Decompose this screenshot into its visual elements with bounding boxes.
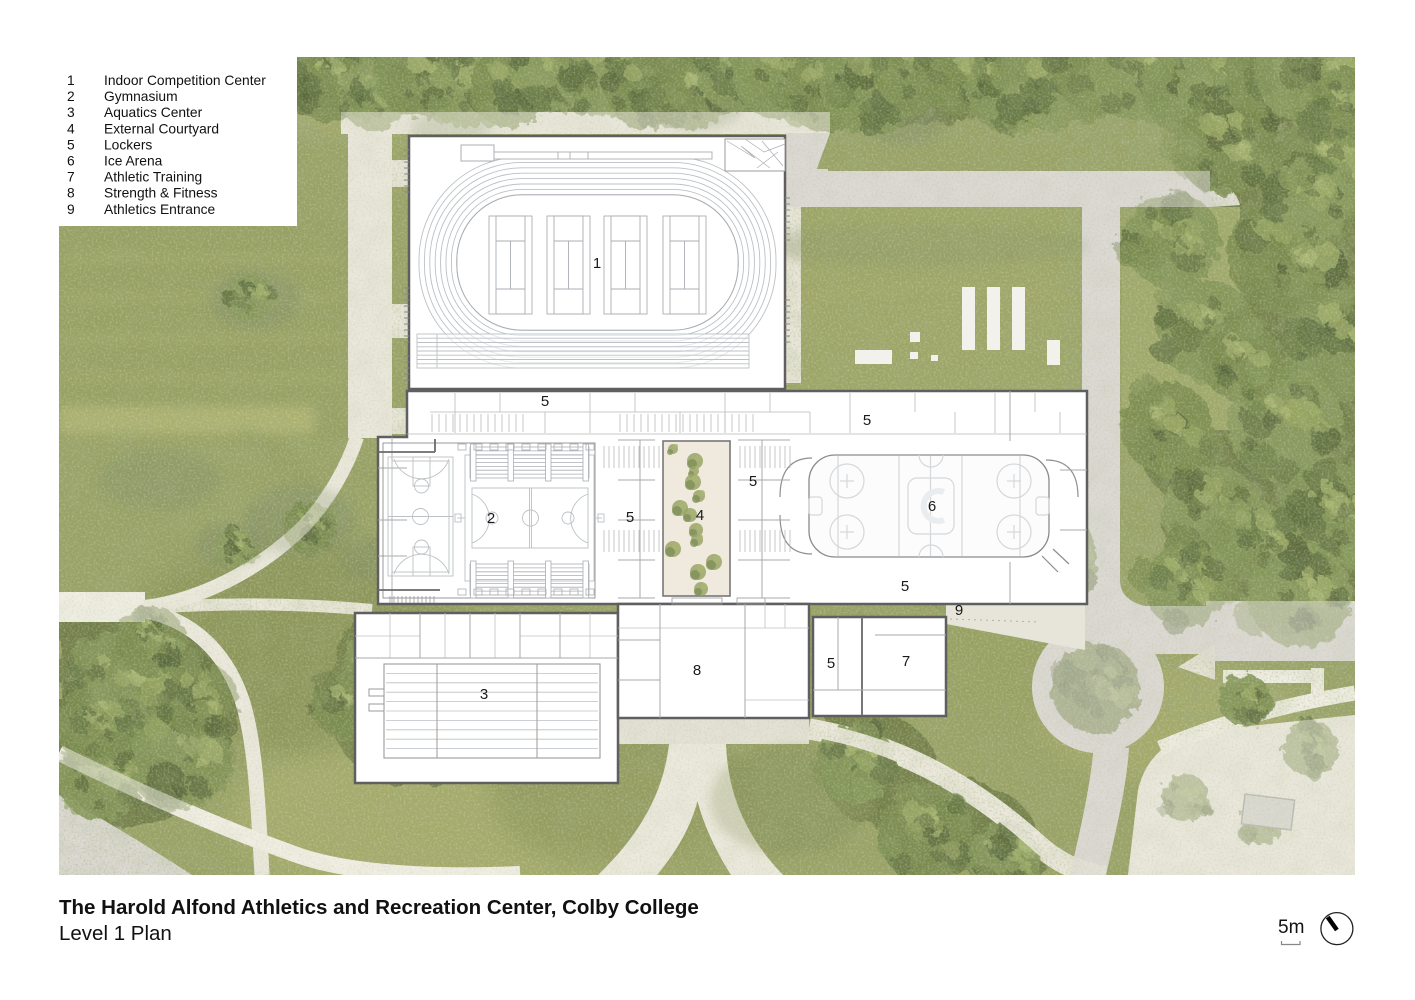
svg-text:External Courtyard: External Courtyard	[104, 121, 219, 136]
svg-text:6: 6	[67, 154, 75, 169]
svg-text:Gymnasium: Gymnasium	[104, 89, 178, 104]
svg-text:5: 5	[749, 473, 757, 490]
svg-text:5: 5	[901, 578, 909, 595]
svg-text:1: 1	[593, 255, 601, 272]
svg-text:Aquatics Center: Aquatics Center	[104, 105, 203, 120]
svg-text:8: 8	[67, 186, 75, 201]
svg-text:6: 6	[928, 498, 936, 515]
svg-text:2: 2	[67, 89, 75, 104]
svg-text:The Harold Alfond Athletics an: The Harold Alfond Athletics and Recreati…	[59, 896, 699, 919]
svg-text:3: 3	[67, 105, 75, 120]
svg-text:5: 5	[827, 655, 835, 672]
svg-text:4: 4	[696, 507, 704, 524]
svg-text:Level 1 Plan: Level 1 Plan	[59, 922, 172, 945]
svg-text:Ice Arena: Ice Arena	[104, 154, 163, 169]
svg-text:9: 9	[67, 202, 75, 217]
svg-text:7: 7	[902, 653, 910, 670]
svg-text:4: 4	[67, 121, 75, 136]
svg-text:Indoor Competition Center: Indoor Competition Center	[104, 73, 266, 88]
svg-text:5m: 5m	[1278, 917, 1304, 938]
svg-text:5: 5	[541, 393, 549, 410]
svg-text:1: 1	[67, 73, 75, 88]
svg-text:3: 3	[480, 686, 488, 703]
svg-text:Lockers: Lockers	[104, 137, 152, 152]
svg-text:Athletics Entrance: Athletics Entrance	[104, 202, 216, 217]
svg-text:9: 9	[955, 602, 963, 619]
svg-text:Strength & Fitness: Strength & Fitness	[104, 186, 218, 201]
svg-text:5: 5	[863, 412, 871, 429]
svg-text:2: 2	[487, 510, 495, 527]
svg-text:7: 7	[67, 170, 75, 185]
svg-text:5: 5	[626, 509, 634, 526]
svg-text:5: 5	[67, 137, 75, 152]
svg-text:Athletic Training: Athletic Training	[104, 170, 202, 185]
svg-text:8: 8	[693, 662, 701, 679]
